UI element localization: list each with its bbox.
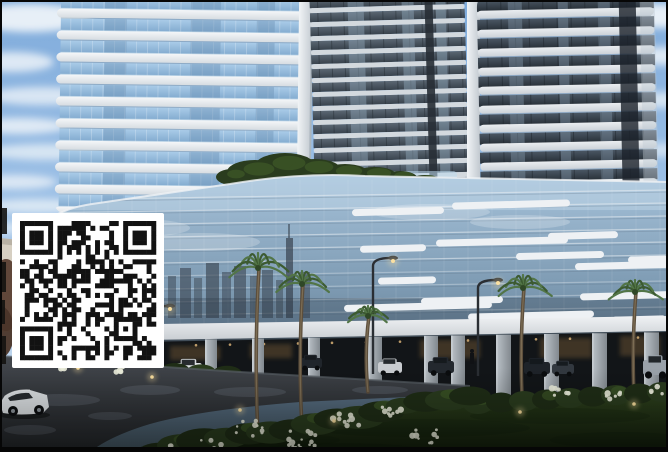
person [470,349,474,364]
ceiling-light [637,336,640,339]
glass-slash [628,255,668,263]
vignette [0,368,668,452]
ceiling-light [229,343,232,346]
listing-photo [0,0,668,452]
qr-code [12,213,164,368]
ceiling-light [195,344,198,347]
ceiling-light [331,342,334,345]
ceiling-light [399,340,402,343]
ceiling-light [535,338,538,341]
cloud-reflection [470,215,570,229]
ceiling-light [569,337,572,340]
rendered-scene [0,0,668,452]
ceiling-light [467,339,470,342]
